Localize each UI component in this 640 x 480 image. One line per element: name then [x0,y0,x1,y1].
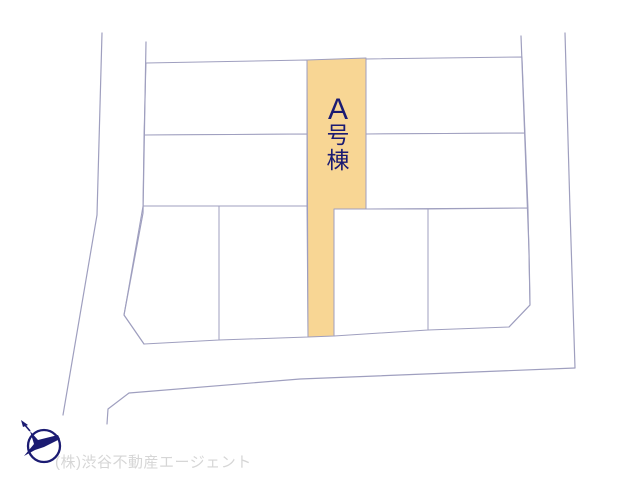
parcel-row2-left [143,134,307,206]
highlight-parcel-label: A 号 棟 [320,96,356,173]
parcel-row2-right [366,133,528,209]
parcel-row3-right [428,208,530,330]
parcel-row1-left [144,60,307,135]
label-char: A [328,96,348,123]
company-watermark: (株)渋谷不動産エージェント [55,451,252,472]
label-char: 棟 [327,148,350,173]
parcel-row1-right [366,57,525,134]
compass-needle-head [21,420,28,427]
parcel-row3-left [124,206,219,344]
parcel-row3-center-right [334,209,428,336]
road-right-outer-line [565,33,575,368]
label-char: 号 [327,123,350,148]
road-bottom-line [107,368,575,424]
road-left-outer-line [63,33,102,415]
lot-plan-page: A 号 棟 (株)渋谷不動産エージェント [0,0,640,480]
parcel-row3-center-left [219,206,308,340]
lot-plan-drawing [0,0,640,480]
